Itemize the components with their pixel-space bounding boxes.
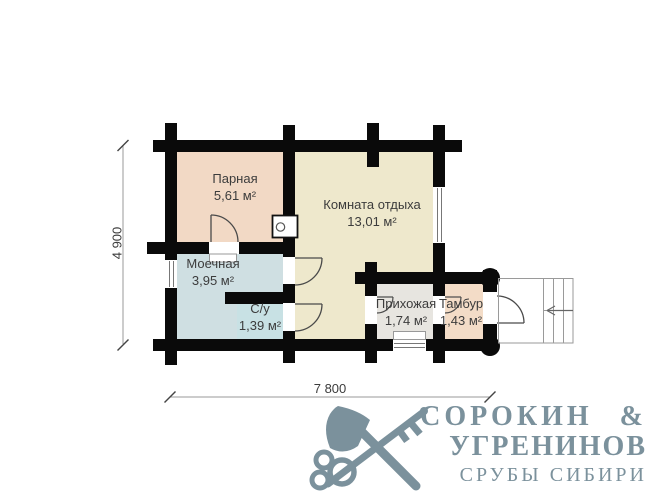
- log-end-top: [480, 268, 500, 288]
- room-name: С/у: [239, 300, 281, 317]
- window-bottom: [393, 339, 426, 351]
- floorplan-canvas: Парная 5,61 м² Комната отдыха 13,01 м² М…: [0, 0, 667, 502]
- wall-left: [165, 123, 177, 365]
- room-area: 3,95 м²: [186, 272, 239, 289]
- room-label-tambur: Тамбур 1,43 м²: [439, 295, 483, 329]
- room-area: 5,61 м²: [212, 187, 257, 204]
- room-area: 13,01 м²: [323, 213, 421, 230]
- door-opening-parnaya: [209, 242, 239, 254]
- room-label-prihozhaya: Прихожая 1,74 м²: [376, 295, 436, 329]
- wall-top: [153, 140, 462, 152]
- window-right: [433, 187, 445, 243]
- room-name: Тамбур: [439, 295, 483, 312]
- room-area: 1,43 м²: [439, 312, 483, 329]
- dimension-width-label: 7 800: [314, 381, 347, 396]
- log-end-bottom: [480, 336, 500, 356]
- room-label-parnaya: Парная 5,61 м²: [212, 170, 257, 204]
- door-opening-moechnaya: [283, 257, 295, 284]
- door-arc-entrance: [497, 296, 524, 323]
- room-name: Моечная: [186, 255, 239, 272]
- logo-line-1: СОРОКИН &: [420, 401, 647, 432]
- window-left: [165, 260, 177, 288]
- room-area: 1,74 м²: [376, 312, 436, 329]
- logo-line-3: СРУБЫ СИБИРИ: [420, 462, 647, 488]
- dimension-height-label: 4 900: [110, 227, 125, 260]
- wall-log-stub-top: [367, 123, 379, 167]
- room-label-su: С/у 1,39 м²: [239, 300, 281, 334]
- room-label-komnata-otdyha: Комната отдыха 13,01 м²: [323, 196, 421, 230]
- door-opening-entrance: [483, 292, 497, 324]
- entry-arrow: [547, 306, 573, 315]
- room-name: Прихожая: [376, 295, 436, 312]
- logo-line-2: УГРЕНИНОВ: [420, 432, 647, 462]
- room-name: Парная: [212, 170, 257, 187]
- room-name: Комната отдыха: [323, 196, 421, 213]
- room-label-moechnaya: Моечная 3,95 м²: [186, 255, 239, 289]
- porch-steps: [499, 279, 574, 344]
- door-opening-su: [283, 303, 295, 331]
- room-area: 1,39 м²: [239, 317, 281, 334]
- logo-text: СОРОКИН & УГРЕНИНОВ СРУБЫ СИБИРИ: [420, 401, 647, 488]
